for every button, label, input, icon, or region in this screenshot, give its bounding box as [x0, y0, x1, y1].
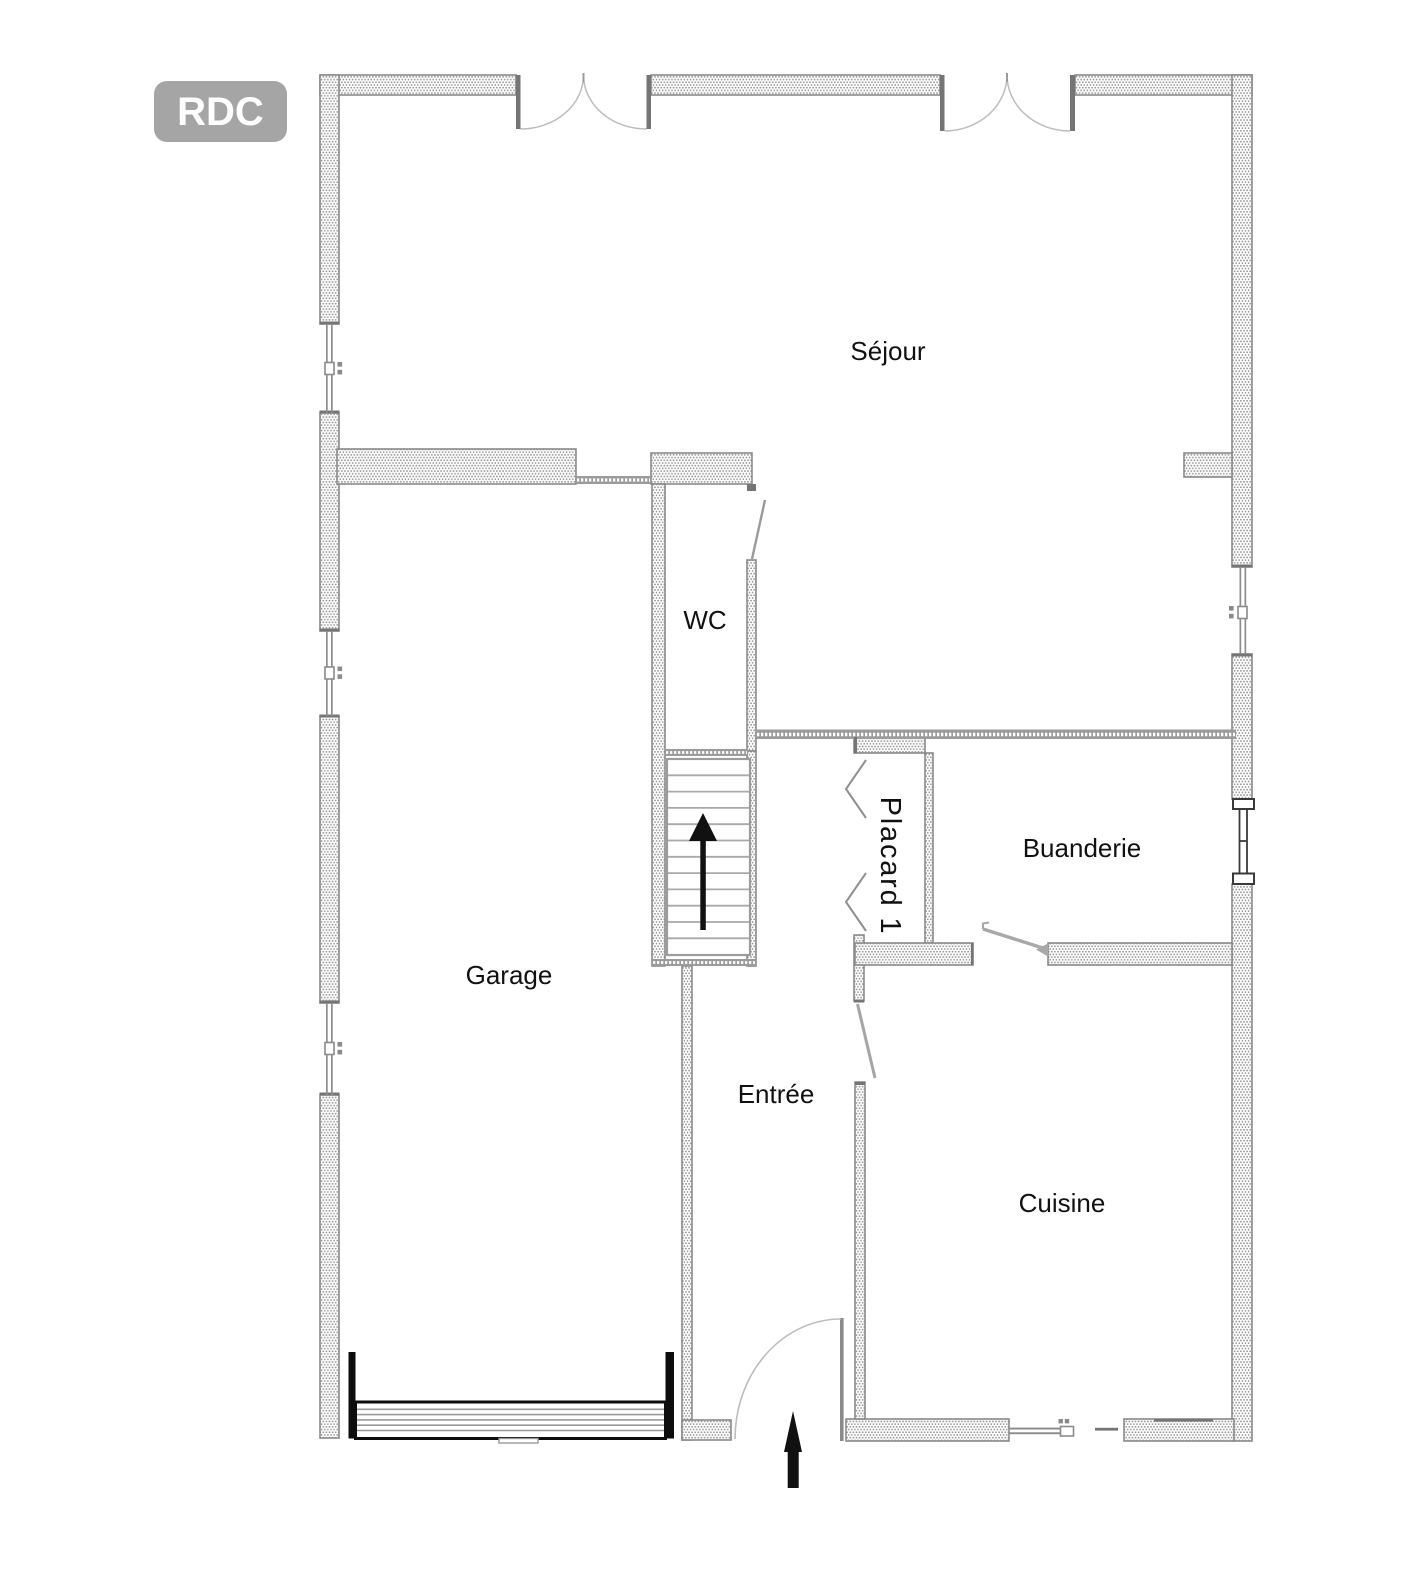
svg-text:Entrée: Entrée: [738, 1079, 815, 1109]
svg-text:Cuisine: Cuisine: [1019, 1188, 1106, 1218]
svg-text:Garage: Garage: [466, 960, 553, 990]
svg-text:Séjour: Séjour: [850, 336, 925, 366]
svg-text:WC: WC: [683, 605, 726, 635]
svg-text:Placard 1: Placard 1: [874, 797, 906, 936]
svg-text:RDC: RDC: [177, 90, 264, 134]
svg-text:Buanderie: Buanderie: [1023, 833, 1142, 863]
